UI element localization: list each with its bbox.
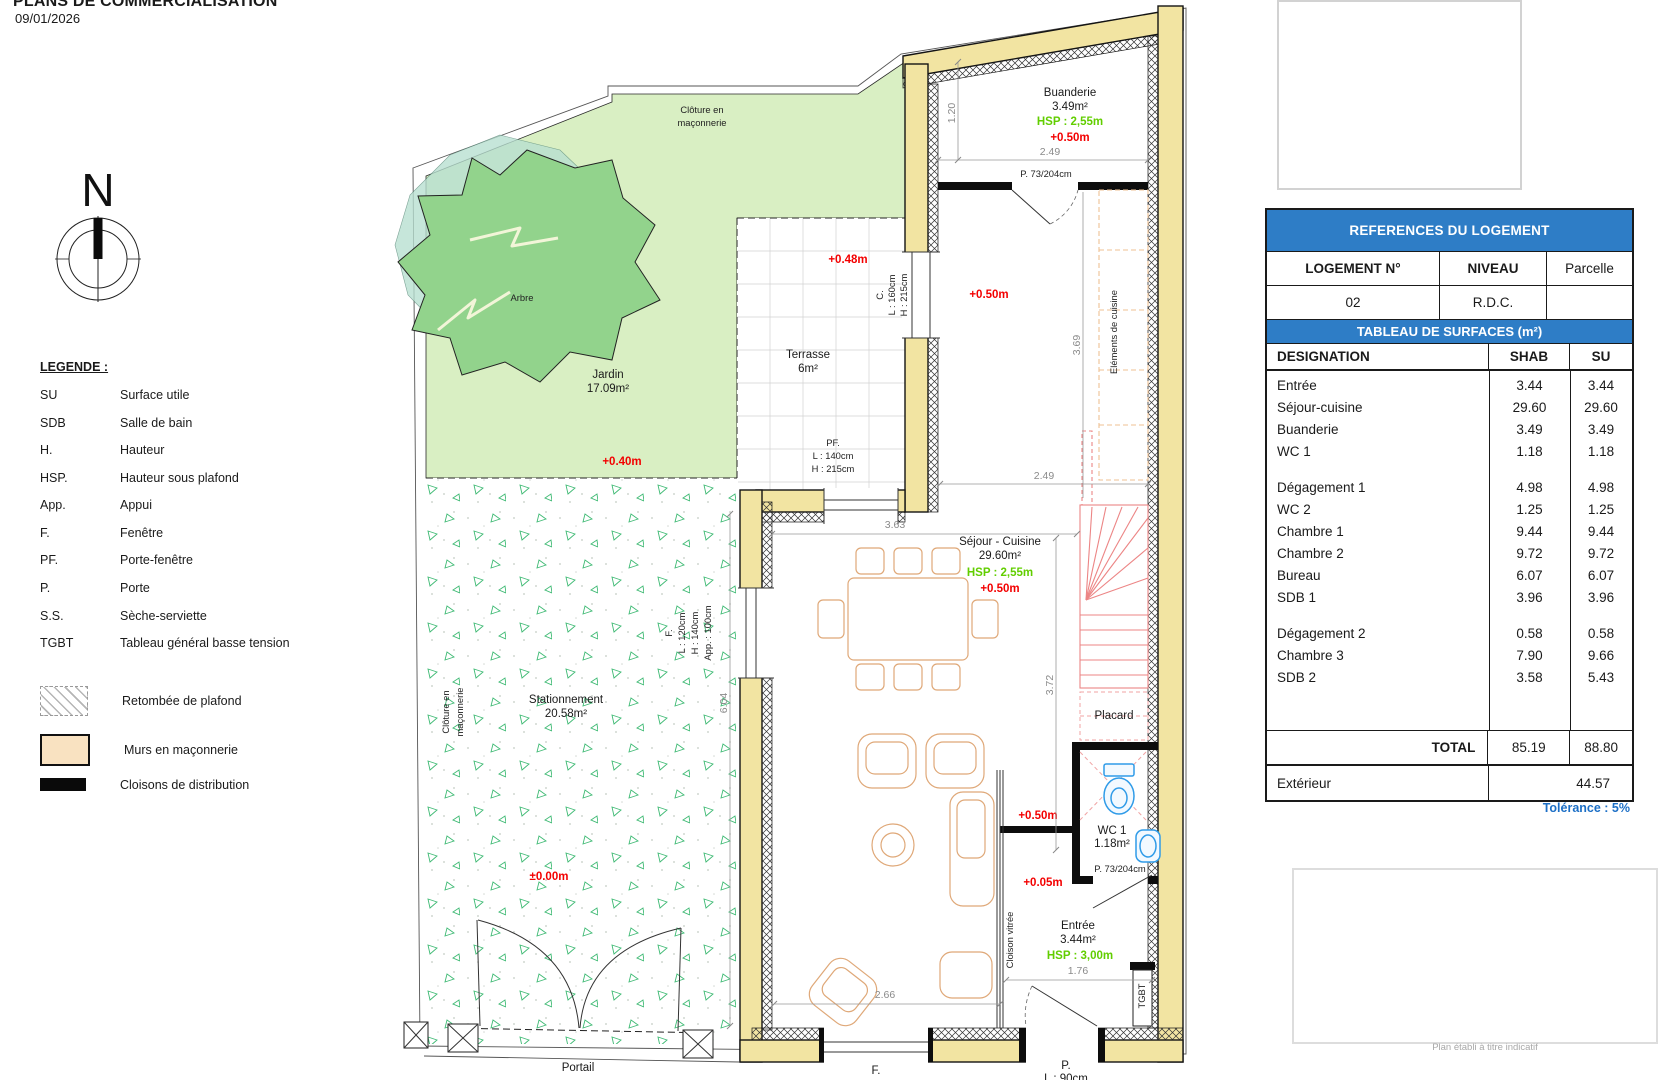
legend-abbr: P. xyxy=(40,581,120,595)
legend-label: Hauteur sous plafond xyxy=(120,471,239,485)
glass-partition-label: Cloison vitrée xyxy=(1004,912,1015,969)
tolerance-note: Tolérance : 5% xyxy=(1265,801,1630,815)
surface-shab: 3.49 xyxy=(1489,422,1570,437)
surface-shab: 1.18 xyxy=(1489,444,1570,459)
surface-label: Buanderie xyxy=(1267,422,1489,437)
legend-label: Porte xyxy=(120,581,150,595)
ceiling-drop-swatch-icon xyxy=(40,686,88,716)
partition-swatch-icon xyxy=(40,778,86,791)
legend-label: Tableau général basse tension xyxy=(120,636,290,650)
col-header-designation: DESIGNATION xyxy=(1267,344,1489,369)
gate-label: Portail xyxy=(562,1062,595,1074)
dim-label: 3.69 xyxy=(1071,335,1083,356)
surfaces-col-headers: DESIGNATION SHAB SU xyxy=(1267,344,1632,371)
surface-row: SDB 13.963.96 xyxy=(1267,586,1632,608)
legend-abbr: F. xyxy=(40,526,120,540)
room-hsp: HSP : 3,00m xyxy=(1047,950,1113,962)
ref-col-header: NIVEAU xyxy=(1440,252,1547,286)
surfaces-header: TABLEAU DE SURFACES (m²) xyxy=(1267,319,1632,344)
surface-shab: 0.58 xyxy=(1489,626,1570,641)
ref-col-header: Parcelle xyxy=(1547,252,1632,286)
surface-su: 29.60 xyxy=(1570,400,1632,415)
surface-row: Chambre 19.449.44 xyxy=(1267,520,1632,542)
surface-label: Entrée xyxy=(1267,378,1489,393)
surface-su: 9.66 xyxy=(1570,648,1632,663)
legend-abbr: S.S. xyxy=(40,609,120,623)
surface-row: Buanderie3.493.49 xyxy=(1267,418,1632,440)
legend-label: Salle de bain xyxy=(120,416,192,430)
window-label: PF. xyxy=(826,437,840,448)
surface-su: 3.44 xyxy=(1570,378,1632,393)
surface-shab: 4.98 xyxy=(1489,480,1570,495)
dim-label: 3.72 xyxy=(1044,675,1056,696)
terrace-label: Terrasse xyxy=(786,349,830,361)
surface-row: Chambre 29.729.72 xyxy=(1267,542,1632,564)
page-title: PLANS DE COMMERCIALISATION xyxy=(13,0,277,11)
legend-label: Porte-fenêtre xyxy=(120,553,193,567)
room-name: Buanderie xyxy=(1044,87,1096,99)
bottom-right-placeholder-box xyxy=(1292,868,1658,1044)
fence-label: Clôture en xyxy=(680,104,723,115)
legend-label: Hauteur xyxy=(120,443,164,457)
surface-shab: 6.07 xyxy=(1489,568,1570,583)
legend-label: Fenêtre xyxy=(120,526,163,540)
references-header: REFERENCES DU LOGEMENT xyxy=(1267,210,1632,252)
dim-label: 3.63 xyxy=(885,519,906,531)
door-label: L : 90cm xyxy=(1044,1073,1088,1080)
surface-su: 4.98 xyxy=(1570,480,1632,495)
compass-rose-icon xyxy=(55,216,141,302)
surface-shab: 7.90 xyxy=(1489,648,1570,663)
swatch-label: Murs en maçonnerie xyxy=(124,743,238,757)
surface-su: 1.25 xyxy=(1570,502,1632,517)
surface-shab: 1.25 xyxy=(1489,502,1570,517)
surface-label: SDB 1 xyxy=(1267,590,1489,605)
surfaces-rows: Entrée3.443.44Séjour-cuisine29.6029.60Bu… xyxy=(1267,371,1632,730)
total-shab: 85.19 xyxy=(1488,731,1570,764)
surface-su: 0.58 xyxy=(1570,626,1632,641)
window-label: C. xyxy=(874,290,885,299)
window-label: H : 215cm xyxy=(812,463,855,474)
parking-area xyxy=(426,478,738,1044)
window-label: App. : 100cm xyxy=(702,605,713,660)
surface-row: Séjour-cuisine29.6029.60 xyxy=(1267,396,1632,418)
legend: LEGENDE : SUSurface utile SDBSalle de ba… xyxy=(40,360,350,810)
legend-abbr: App. xyxy=(40,498,120,512)
sink-icon xyxy=(1136,830,1160,862)
legend-abbr: H. xyxy=(40,443,120,457)
room-area: 3.44m² xyxy=(1060,934,1096,946)
ref-value: 02 xyxy=(1267,286,1440,319)
dim-label: 2.66 xyxy=(875,989,896,1001)
col-header-su: SU xyxy=(1570,344,1632,369)
fence-label: maçonnerie xyxy=(678,117,727,128)
surface-shab: 3.44 xyxy=(1489,378,1570,393)
legend-label: Appui xyxy=(120,498,152,512)
surface-su: 9.44 xyxy=(1570,524,1632,539)
surface-su: 1.18 xyxy=(1570,444,1632,459)
legend-abbr: PF. xyxy=(40,553,120,567)
dim-label: 2.49 xyxy=(1040,146,1061,158)
door-label: P. 73/204cm xyxy=(1094,863,1146,874)
surface-label: Chambre 1 xyxy=(1267,524,1489,539)
surface-shab: 3.96 xyxy=(1489,590,1570,605)
fence-label: maçonnerie xyxy=(454,688,465,737)
dim-label: 1.76 xyxy=(1068,965,1089,977)
surface-su: 6.07 xyxy=(1570,568,1632,583)
dim-label: 6.04 xyxy=(718,693,730,714)
legend-abbr: SU xyxy=(40,388,120,402)
window-f-west xyxy=(738,588,774,678)
window-f-south xyxy=(819,1026,933,1064)
window-label: L : 120cm xyxy=(676,612,687,653)
surface-label: WC 1 xyxy=(1267,444,1489,459)
corner-post-icon xyxy=(404,1022,428,1048)
surface-shab: 3.58 xyxy=(1489,670,1570,685)
level-label: +0.05m xyxy=(1023,877,1062,889)
parking-area-label: 20.58m² xyxy=(545,708,587,720)
surface-label: Chambre 2 xyxy=(1267,546,1489,561)
north-compass: N xyxy=(40,158,170,318)
surface-label: Dégagement 2 xyxy=(1267,626,1489,641)
gate-post-icon xyxy=(448,1024,478,1052)
level-label: +0.48m xyxy=(828,254,867,266)
surface-row: Entrée3.443.44 xyxy=(1267,374,1632,396)
toilet-icon xyxy=(1104,764,1134,814)
room-level: +0.50m xyxy=(980,583,1019,595)
surface-label: Dégagement 1 xyxy=(1267,480,1489,495)
window-label: H : 140cm xyxy=(689,611,700,654)
room-area: 29.60m² xyxy=(979,550,1021,562)
surface-su: 5.43 xyxy=(1570,670,1632,685)
dim-label: 1.20 xyxy=(946,103,958,124)
legend-abbr: SDB xyxy=(40,416,120,430)
legend-label: Sèche-serviette xyxy=(120,609,207,623)
total-row: TOTAL 85.19 88.80 xyxy=(1267,730,1632,764)
page-date: 09/01/2026 xyxy=(15,11,80,26)
surface-su: 9.72 xyxy=(1570,546,1632,561)
tgbt-box: TGBT xyxy=(1130,962,1155,1026)
terrace-area-label: 6m² xyxy=(798,363,818,375)
window-label: F. xyxy=(663,629,674,636)
floor-plan-drawing: Arbre xyxy=(390,0,1200,1080)
surface-label: WC 2 xyxy=(1267,502,1489,517)
garden-area-label: 17.09m² xyxy=(587,383,629,395)
swatch-label: Retombée de plafond xyxy=(122,694,242,708)
top-right-placeholder-box xyxy=(1277,0,1522,190)
room-area: 3.49m² xyxy=(1052,101,1088,113)
garden-label: Jardin xyxy=(592,369,623,381)
surface-label: Séjour-cuisine xyxy=(1267,400,1489,415)
surface-row: Chambre 37.909.66 xyxy=(1267,644,1632,666)
kitchen-level: +0.50m xyxy=(969,289,1008,301)
col-header-shab: SHAB xyxy=(1489,344,1570,369)
parking-label: Stationnement xyxy=(529,694,604,706)
surface-row: Bureau6.076.07 xyxy=(1267,564,1632,586)
room-name: WC 1 xyxy=(1098,825,1127,837)
footnote: Plan établi à titre indicatif xyxy=(1340,1042,1630,1053)
door-label: P. xyxy=(1061,1060,1070,1072)
exterior-value: 44.57 xyxy=(1489,776,1632,791)
surface-row: SDB 23.585.43 xyxy=(1267,666,1632,688)
legend-abbr: TGBT xyxy=(40,636,120,650)
window-label: H : 215cm xyxy=(898,273,909,316)
legend-abbr: HSP. xyxy=(40,471,120,485)
tgbt-label: TGBT xyxy=(1136,983,1147,1008)
room-area: 1.18m² xyxy=(1094,838,1130,850)
column-divider xyxy=(1570,371,1571,730)
exterior-label: Extérieur xyxy=(1267,766,1489,800)
exterior-row: Extérieur 44.57 xyxy=(1267,764,1632,800)
dim-label: 2.49 xyxy=(1034,470,1055,482)
references-grid: LOGEMENT N° NIVEAU Parcelle 02 R.D.C. xyxy=(1267,252,1632,319)
surface-row: WC 21.251.25 xyxy=(1267,498,1632,520)
door-label: P. 73/204cm xyxy=(1020,168,1072,179)
surface-row: WC 11.181.18 xyxy=(1267,440,1632,462)
column-divider xyxy=(1489,371,1490,730)
surface-su: 3.49 xyxy=(1570,422,1632,437)
surface-shab: 9.72 xyxy=(1489,546,1570,561)
surface-su: 3.96 xyxy=(1570,590,1632,605)
surface-label: Chambre 3 xyxy=(1267,648,1489,663)
surface-shab: 29.60 xyxy=(1489,400,1570,415)
room-level: +0.50m xyxy=(1050,132,1089,144)
window-label: L : 160cm xyxy=(886,274,897,315)
surface-row: Dégagement 20.580.58 xyxy=(1267,622,1632,644)
window-label: L : 140cm xyxy=(813,450,854,461)
reference-tables: REFERENCES DU LOGEMENT LOGEMENT N° NIVEA… xyxy=(1265,208,1634,802)
ref-value: R.D.C. xyxy=(1440,286,1547,319)
ref-col-header: LOGEMENT N° xyxy=(1267,252,1440,286)
ref-value xyxy=(1547,286,1632,319)
total-label: TOTAL xyxy=(1267,731,1488,764)
level-label: ±0.00m xyxy=(530,871,569,883)
surface-row: Dégagement 14.984.98 xyxy=(1267,476,1632,498)
level-label: +0.50m xyxy=(1018,810,1057,822)
level-label: +0.40m xyxy=(602,456,641,468)
masonry-wall-swatch-icon xyxy=(40,734,90,766)
room-name: Entrée xyxy=(1061,920,1095,932)
room-hsp: HSP : 2,55m xyxy=(967,567,1033,579)
surface-label: SDB 2 xyxy=(1267,670,1489,685)
surface-shab: 9.44 xyxy=(1489,524,1570,539)
gate-post-icon xyxy=(683,1030,713,1058)
tree-label: Arbre xyxy=(511,292,534,303)
legend-title: LEGENDE : xyxy=(40,360,350,374)
kitchen-label: Eléments de cuisine xyxy=(1108,290,1119,374)
surface-label: Bureau xyxy=(1267,568,1489,583)
room-name: Séjour - Cuisine xyxy=(959,536,1041,548)
window-label: F. xyxy=(872,1065,881,1077)
legend-label: Surface utile xyxy=(120,388,189,402)
total-su: 88.80 xyxy=(1570,740,1632,755)
swatch-label: Cloisons de distribution xyxy=(120,778,249,792)
room-hsp: HSP : 2,55m xyxy=(1037,116,1103,128)
floor-plan-page: PLANS DE COMMERCIALISATION 09/01/2026 N … xyxy=(0,0,1668,1080)
fence-label: Clôture en xyxy=(440,690,451,733)
closet-label: Placard xyxy=(1095,710,1134,722)
north-label: N xyxy=(81,164,114,216)
